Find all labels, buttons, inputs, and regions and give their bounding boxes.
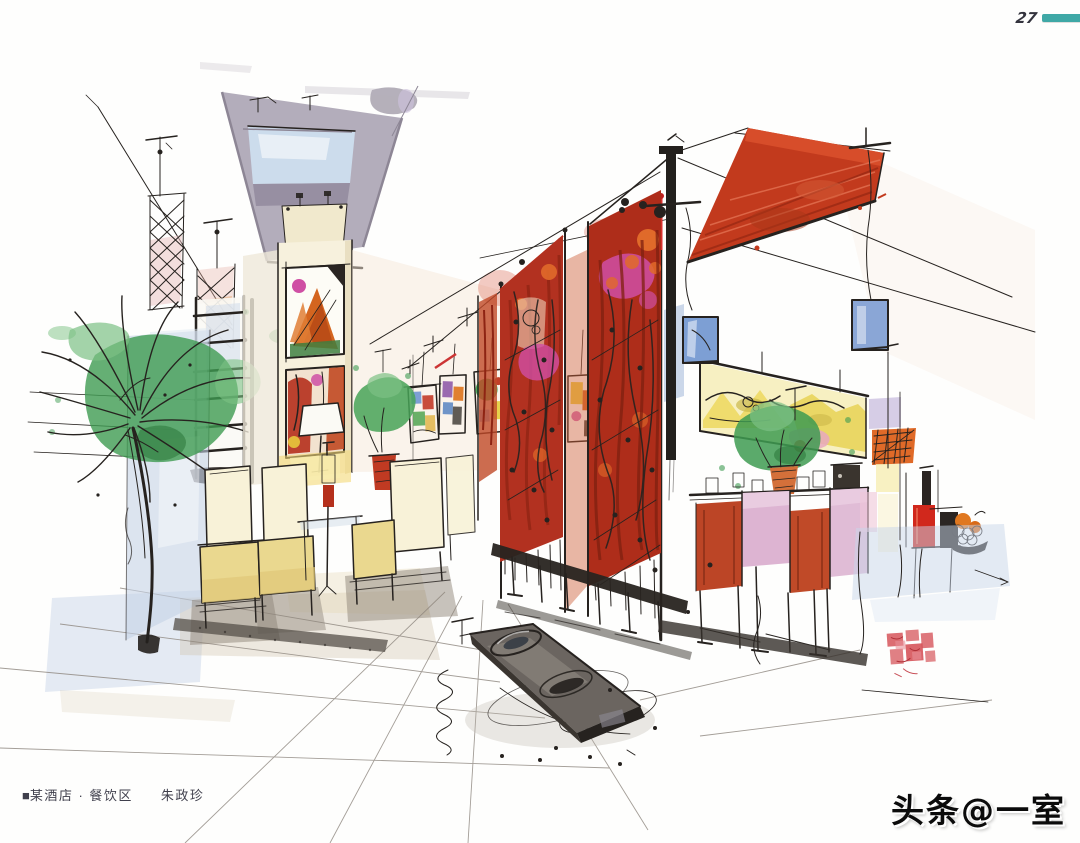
watermark: 头条@一室: [891, 784, 1066, 832]
bar-area: [658, 338, 1010, 702]
banner-a: [500, 235, 563, 590]
espresso-machine: [833, 465, 860, 488]
interior-sketch-illustration: [0, 0, 1080, 843]
dining-chair-4: [446, 455, 475, 560]
table-lamp-shade: [299, 403, 344, 436]
wine-bottle-neck: [922, 471, 931, 506]
coil-scribble: [436, 670, 452, 755]
center-column: [243, 240, 352, 488]
caption: ■某酒店 · 餐饮区朱政珍: [22, 785, 204, 804]
page-number: 27: [1015, 9, 1039, 27]
ceiling-recess: [200, 62, 470, 268]
page-header-bar: [1042, 14, 1080, 22]
survey-pin-1: [146, 136, 177, 196]
caption-marker: ■: [22, 788, 30, 803]
support-pole: [666, 150, 676, 460]
side-props: [852, 397, 1010, 622]
column-artwork-upper: [282, 262, 350, 362]
banner-b: [589, 190, 666, 618]
page-header: 27: [1016, 9, 1080, 27]
survey-pin-2: [204, 219, 232, 268]
caption-artist: 朱政珍: [161, 788, 205, 803]
book-page: 27 ■某酒店 · 餐饮区朱政珍 头条@一室: [0, 0, 1080, 843]
bar-counter: [658, 487, 868, 666]
wall-washes: [352, 140, 1035, 478]
artist-seal: [887, 628, 937, 677]
caption-title: 某酒店 · 餐饮区: [30, 788, 133, 803]
